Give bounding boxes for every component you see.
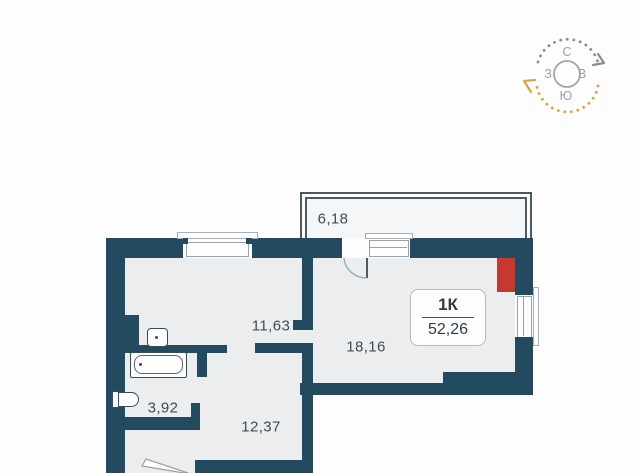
compass-north-label: С [562,45,571,59]
wall-hallway-top [255,343,313,353]
apartment-info-box: 1К 52,26 [410,289,486,346]
bathtub-drain-dot [139,363,142,366]
floor-plan: С В Ю З 6,18 11,63 18,16 3,92 12,37 1К 5… [0,0,640,473]
balcony-door-opening [342,238,368,258]
wall-center-lower [302,343,313,473]
room-label-living-kitchen: 11,63 [252,318,290,335]
window-cap [515,337,533,342]
apartment-total-area: 52,26 [428,321,468,339]
window-balcony-sill [365,233,413,239]
window-balcony-frame [369,240,409,257]
wall-left [106,238,125,473]
room-label-bathroom: 3,92 [148,400,179,417]
apartment-type-label: 1К [438,295,458,315]
window-top-left-frame [186,242,249,257]
wall-bottom-entry [195,460,313,473]
wall-bottom-main [300,383,450,395]
wall-bathroom-door-stub [191,403,200,417]
compass-arrow-gray-icon [593,54,604,65]
sink-drain-dot [155,336,158,339]
wall-bottom-right-step [443,372,533,395]
toilet-bowl-icon [118,392,139,407]
window-balcony-mullion [370,247,407,248]
wall-bathroom-bottom [125,417,200,430]
wall-tub-stub [197,353,207,377]
window-cap [515,290,533,295]
compass-east-label: В [578,67,586,81]
window-cap [246,238,252,244]
room-label-main-room: 18,16 [346,339,386,356]
window-right-sill [533,287,539,346]
window-right-mullion [523,297,524,336]
wall-pier [125,315,139,345]
wall-center-upper [302,258,313,330]
compass-south-label: Ю [560,89,573,103]
compass-west-label: З [544,67,552,81]
wall-center-foot [293,320,302,330]
window-right-frame [517,296,532,338]
compass-circle-icon [554,61,580,87]
red-riser-block [497,258,515,292]
wall-top [106,238,533,258]
window-cap [183,238,188,244]
info-box-divider [422,317,474,319]
compass-arrow-orange-icon [524,80,535,92]
room-label-hallway: 12,37 [241,419,281,436]
room-label-balcony: 6,18 [318,211,349,228]
